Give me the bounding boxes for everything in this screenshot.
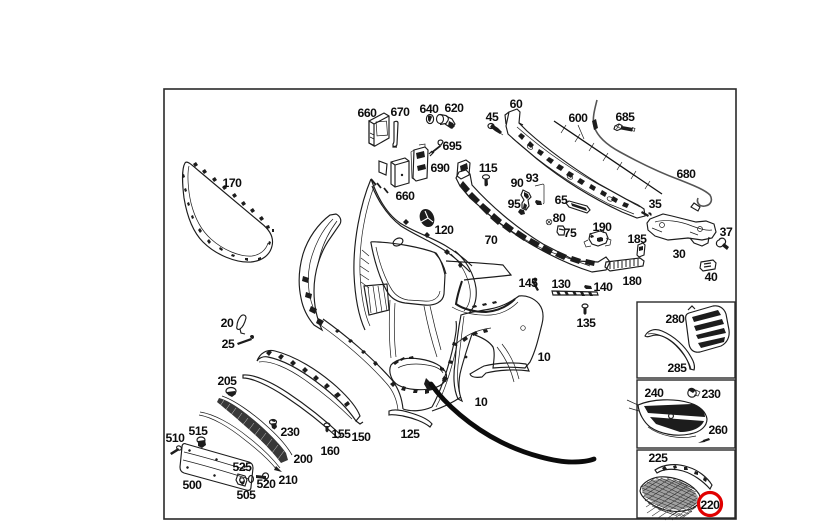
svg-text:240: 240 bbox=[645, 386, 665, 400]
svg-text:170: 170 bbox=[223, 176, 243, 190]
svg-text:230: 230 bbox=[702, 387, 722, 401]
svg-text:10: 10 bbox=[538, 350, 551, 364]
svg-text:65: 65 bbox=[555, 193, 568, 207]
svg-text:600: 600 bbox=[569, 111, 589, 125]
svg-text:620: 620 bbox=[445, 101, 465, 115]
svg-text:140: 140 bbox=[594, 280, 614, 294]
svg-text:525: 525 bbox=[233, 460, 253, 474]
svg-text:150: 150 bbox=[352, 430, 372, 444]
svg-text:510: 510 bbox=[166, 431, 186, 445]
svg-text:500: 500 bbox=[183, 478, 203, 492]
svg-text:210: 210 bbox=[279, 473, 299, 487]
svg-text:37: 37 bbox=[720, 225, 733, 239]
svg-text:260: 260 bbox=[709, 423, 729, 437]
svg-text:10: 10 bbox=[475, 395, 488, 409]
svg-text:35: 35 bbox=[649, 197, 662, 211]
svg-text:515: 515 bbox=[189, 424, 209, 438]
svg-text:160: 160 bbox=[321, 444, 341, 458]
svg-text:135: 135 bbox=[577, 316, 597, 330]
svg-text:145: 145 bbox=[519, 276, 539, 290]
svg-text:25: 25 bbox=[222, 337, 235, 351]
svg-text:660: 660 bbox=[396, 189, 416, 203]
svg-text:45: 45 bbox=[486, 110, 499, 124]
svg-text:70: 70 bbox=[485, 233, 498, 247]
svg-text:685: 685 bbox=[616, 110, 636, 124]
svg-text:190: 190 bbox=[593, 220, 613, 234]
svg-text:230: 230 bbox=[281, 425, 301, 439]
svg-text:30: 30 bbox=[673, 247, 686, 261]
svg-text:520: 520 bbox=[257, 477, 277, 491]
svg-text:125: 125 bbox=[401, 427, 421, 441]
svg-text:680: 680 bbox=[677, 167, 697, 181]
svg-text:93: 93 bbox=[526, 171, 539, 185]
svg-text:40: 40 bbox=[705, 270, 718, 284]
svg-text:130: 130 bbox=[552, 277, 572, 291]
svg-text:115: 115 bbox=[479, 161, 498, 175]
svg-text:280: 280 bbox=[666, 312, 686, 326]
svg-text:690: 690 bbox=[431, 161, 451, 175]
svg-text:695: 695 bbox=[443, 139, 463, 153]
svg-text:225: 225 bbox=[649, 451, 669, 465]
svg-text:660: 660 bbox=[358, 106, 378, 120]
svg-text:180: 180 bbox=[623, 274, 643, 288]
svg-text:75: 75 bbox=[564, 226, 577, 240]
svg-text:285: 285 bbox=[668, 361, 688, 375]
svg-text:185: 185 bbox=[628, 232, 648, 246]
svg-text:670: 670 bbox=[391, 105, 411, 119]
svg-text:95: 95 bbox=[508, 197, 521, 211]
svg-text:80: 80 bbox=[553, 211, 566, 225]
svg-text:640: 640 bbox=[420, 102, 440, 116]
svg-text:155: 155 bbox=[332, 427, 352, 441]
svg-text:505: 505 bbox=[237, 488, 257, 502]
svg-text:200: 200 bbox=[294, 452, 314, 466]
svg-text:90: 90 bbox=[511, 176, 524, 190]
svg-text:60: 60 bbox=[510, 97, 523, 111]
svg-text:20: 20 bbox=[221, 316, 234, 330]
svg-text:220: 220 bbox=[701, 498, 721, 512]
svg-text:205: 205 bbox=[218, 374, 238, 388]
svg-text:120: 120 bbox=[435, 223, 455, 237]
